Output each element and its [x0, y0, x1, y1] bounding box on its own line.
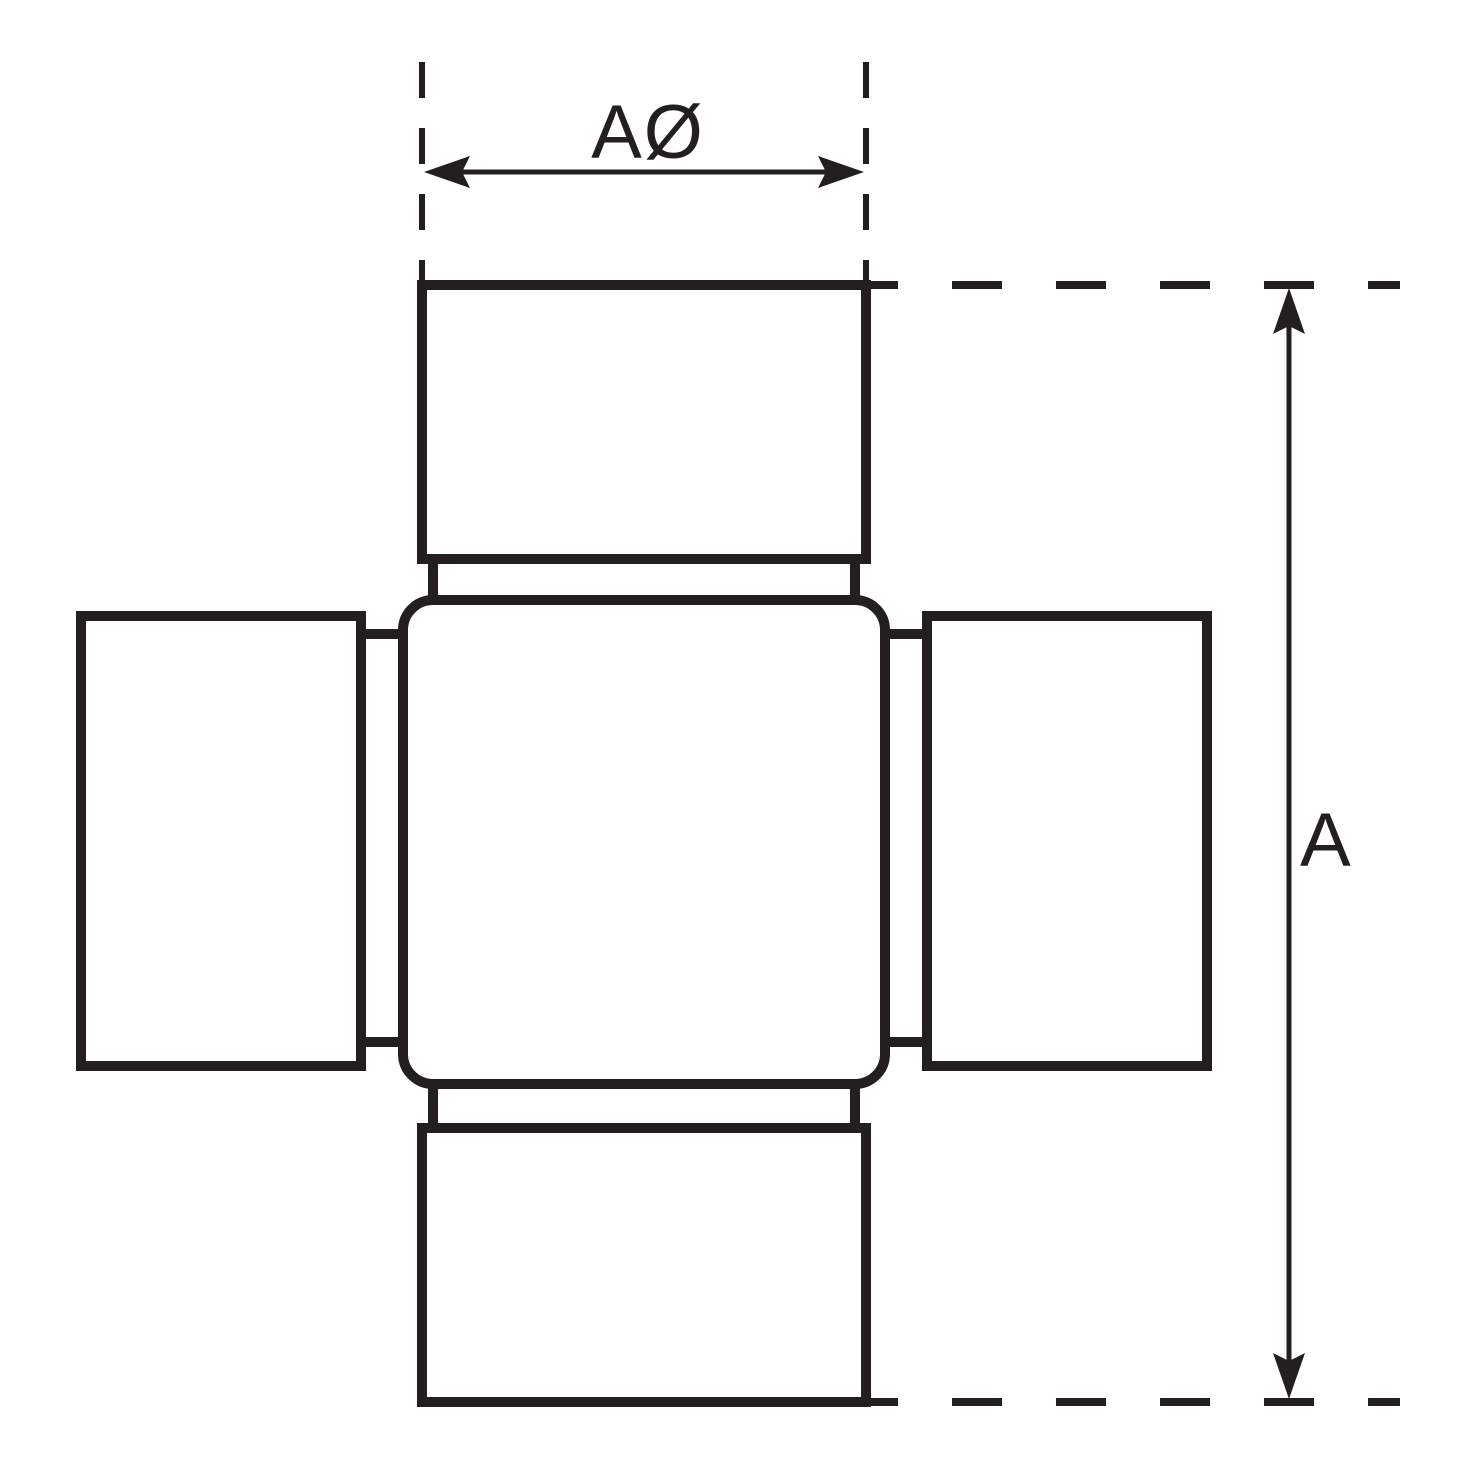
diameter-dimension-label: AØ [591, 90, 705, 175]
universal-joint-cross-drawing: AØ A [0, 0, 1474, 1474]
right-bearing-cap [927, 616, 1207, 1066]
dimension-lines [455, 172, 1289, 1368]
body-fillet-bottom-left [403, 1034, 433, 1084]
part-outlines [81, 285, 1207, 1402]
bottom-cap-flange [433, 1084, 855, 1128]
reference-lines [422, 62, 1400, 1402]
length-dimension-label: A [1300, 798, 1353, 883]
dimension-labels: AØ A [591, 90, 1353, 883]
body-fillet-bottom-right [855, 1034, 885, 1084]
top-bearing-cap [422, 285, 866, 559]
right-trunnion-neck [885, 634, 927, 1042]
bottom-bearing-cap [422, 1128, 866, 1402]
body-fillet-top-left [403, 600, 433, 642]
left-bearing-cap [81, 616, 361, 1066]
top-cap-flange [433, 559, 855, 600]
body-fillet-top-right [855, 600, 885, 642]
technical-drawing-canvas: AØ A [0, 0, 1474, 1474]
left-trunnion-neck [361, 634, 403, 1042]
